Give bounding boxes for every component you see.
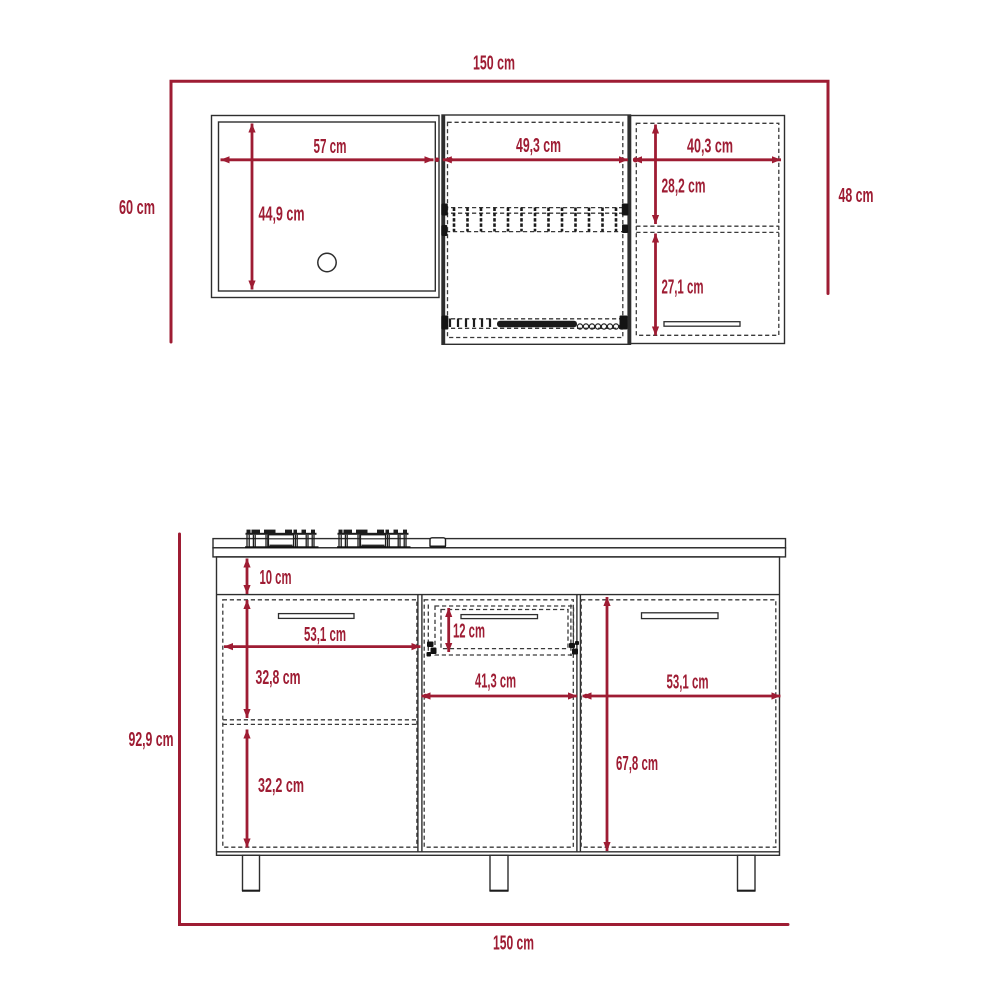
svg-text:92,9 cm: 92,9 cm bbox=[129, 729, 174, 751]
svg-text:41,3 cm: 41,3 cm bbox=[475, 671, 516, 693]
svg-text:53,1 cm: 53,1 cm bbox=[667, 671, 709, 693]
svg-text:57 cm: 57 cm bbox=[314, 136, 347, 158]
svg-text:28,2 cm: 28,2 cm bbox=[662, 176, 706, 198]
svg-text:53,1 cm: 53,1 cm bbox=[304, 624, 346, 646]
svg-text:10 cm: 10 cm bbox=[260, 567, 292, 589]
svg-text:32,8 cm: 32,8 cm bbox=[256, 667, 301, 689]
svg-text:60 cm: 60 cm bbox=[119, 197, 155, 219]
svg-text:49,3 cm: 49,3 cm bbox=[516, 135, 561, 157]
svg-text:150 cm: 150 cm bbox=[493, 933, 534, 955]
svg-text:12 cm: 12 cm bbox=[453, 621, 485, 643]
svg-text:40,3 cm: 40,3 cm bbox=[687, 136, 733, 158]
svg-text:44,9 cm: 44,9 cm bbox=[259, 204, 305, 226]
svg-text:27,1 cm: 27,1 cm bbox=[662, 277, 704, 299]
svg-text:150 cm: 150 cm bbox=[473, 53, 515, 75]
svg-text:48 cm: 48 cm bbox=[839, 185, 874, 207]
svg-text:32,2 cm: 32,2 cm bbox=[258, 775, 304, 797]
svg-text:67,8 cm: 67,8 cm bbox=[616, 753, 658, 775]
